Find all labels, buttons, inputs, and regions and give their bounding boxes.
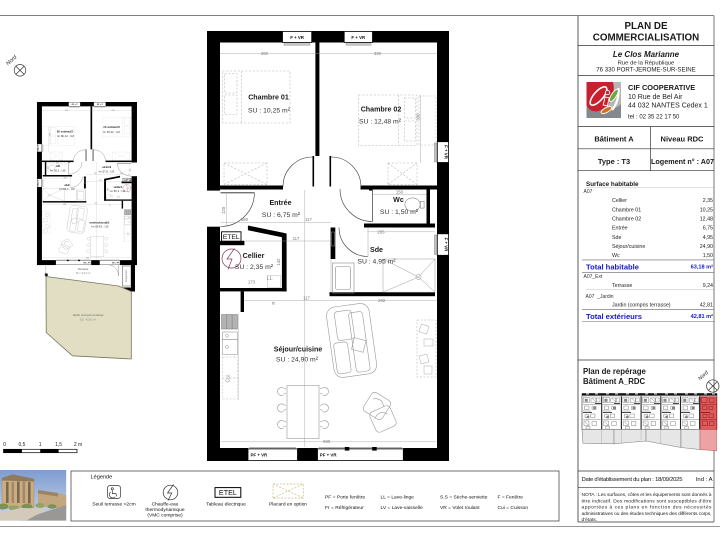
svg-text:1,50: 1,50 — [703, 253, 713, 259]
svg-text:173: 173 — [248, 279, 256, 284]
svg-text:Type : T3: Type : T3 — [598, 157, 630, 166]
svg-text:Bâtiment A_RDC: Bâtiment A_RDC — [583, 377, 645, 386]
svg-text:F + VR: F + VR — [290, 35, 305, 40]
svg-text:Seuil terrasse <2cm: Seuil terrasse <2cm — [92, 502, 135, 508]
svg-text:PLAN DE: PLAN DE — [624, 21, 667, 32]
svg-text:2,35: 2,35 — [703, 198, 713, 204]
svg-text:Wc: Wc — [612, 253, 620, 259]
svg-text:LV = Lave-vaisselle: LV = Lave-vaisselle — [381, 505, 423, 511]
svg-text:590: 590 — [323, 439, 331, 444]
svg-text:12,48: 12,48 — [700, 217, 713, 223]
svg-text:Cellier: Cellier — [243, 252, 265, 260]
svg-text:Niveau RDC: Niveau RDC — [661, 135, 705, 144]
svg-text:1: 1 — [39, 442, 42, 448]
svg-text:Bâtiment A: Bâtiment A — [594, 135, 634, 144]
svg-text:CIF COOPERATIVE: CIF COOPERATIVE — [628, 83, 695, 92]
svg-text:SU : 12,48 m²: SU : 12,48 m² — [359, 119, 402, 126]
svg-text:Entrée: Entrée — [612, 226, 628, 232]
svg-text:76 330 PORT-JEROME-SUR-SEINE: 76 330 PORT-JEROME-SUR-SEINE — [596, 67, 695, 74]
svg-text:PF = Porte fenêtre: PF = Porte fenêtre — [325, 494, 365, 500]
svg-text:180: 180 — [241, 217, 249, 222]
svg-text:Total habitable: Total habitable — [586, 262, 639, 271]
svg-text:Entrée: Entrée — [269, 199, 291, 207]
svg-text:Plan de repérage: Plan de repérage — [583, 367, 646, 376]
svg-text:Terrasse: Terrasse — [612, 283, 632, 289]
svg-text:117: 117 — [293, 236, 300, 241]
svg-text:0,5: 0,5 — [19, 442, 26, 448]
svg-text:SU : 4,95 m²: SU : 4,95 m² — [357, 259, 396, 266]
svg-text:Chauffe-eau: Chauffe-eau — [152, 502, 179, 508]
svg-text:apportées à ces plans en fonct: apportées à ces plans en fonction des né… — [582, 505, 713, 511]
svg-text:Sde: Sde — [612, 235, 621, 241]
svg-text:4,95: 4,95 — [703, 235, 713, 241]
svg-text:292: 292 — [378, 298, 386, 303]
svg-text:Jardin (compris terrasse): Jardin (compris terrasse) — [73, 313, 104, 317]
svg-text:142: 142 — [276, 258, 281, 266]
svg-text:Wc: Wc — [393, 196, 404, 204]
svg-text:Fr = Réfrigérateur: Fr = Réfrigérateur — [325, 505, 364, 511]
svg-text:SU : 9,24 m²: SU : 9,24 m² — [76, 271, 91, 275]
svg-text:Tableau électrique: Tableau électrique — [206, 502, 246, 508]
svg-text:Séjour/cuisine: Séjour/cuisine — [274, 346, 323, 354]
svg-text:6,75: 6,75 — [703, 226, 713, 232]
svg-text:120: 120 — [221, 206, 226, 214]
svg-text:150: 150 — [396, 190, 404, 195]
svg-text:F + VR: F + VR — [444, 145, 449, 160]
svg-text:10,25: 10,25 — [700, 207, 713, 213]
svg-text:A07 _Jardin: A07 _Jardin — [586, 294, 614, 300]
svg-text:Chambre 02: Chambre 02 — [612, 217, 641, 223]
svg-text:Total extérieurs: Total extérieurs — [586, 312, 642, 321]
svg-text:24,90: 24,90 — [700, 244, 713, 250]
svg-text:SU : 42,81 m²: SU : 42,81 m² — [80, 318, 96, 322]
svg-text:SU : 2,35 m²: SU : 2,35 m² — [235, 264, 274, 271]
svg-text:2 m: 2 m — [74, 442, 82, 448]
svg-text:Chambre 01: Chambre 01 — [612, 207, 641, 213]
svg-text:Jardin (compris terrasse): Jardin (compris terrasse) — [612, 303, 671, 309]
svg-text:42,81 m²: 42,81 m² — [691, 313, 714, 320]
svg-text:S.S = Sèche-serviette: S.S = Sèche-serviette — [440, 494, 488, 500]
svg-text:Logement n° : A07: Logement n° : A07 — [651, 157, 714, 166]
svg-text:44 032 NANTES Cedex 1: 44 032 NANTES Cedex 1 — [628, 103, 708, 110]
svg-text:9,24: 9,24 — [703, 283, 713, 289]
svg-text:Terrasse: Terrasse — [78, 267, 89, 271]
svg-text:Cui.: Cui. — [226, 374, 232, 383]
svg-text:F + VR: F + VR — [351, 35, 366, 40]
svg-text:NOTA : Les surfaces, côtes et: NOTA : Les surfaces, côtes et les équipe… — [582, 492, 712, 498]
svg-text:1,5: 1,5 — [55, 442, 62, 448]
svg-text:10 Rue de Bel Air: 10 Rue de Bel Air — [628, 94, 683, 101]
svg-text:SU : 24,90 m²: SU : 24,90 m² — [276, 357, 319, 364]
svg-text:SU : 10,25 m²: SU : 10,25 m² — [248, 108, 291, 115]
svg-text:Légende: Légende — [91, 474, 113, 480]
svg-text:VR = Volet roulant: VR = Volet roulant — [440, 505, 480, 511]
svg-text:ETEL: ETEL — [219, 488, 237, 497]
svg-text:63,18 m²: 63,18 m² — [691, 263, 714, 270]
svg-text:Le Clos Marianne: Le Clos Marianne — [613, 50, 680, 59]
svg-text:COMMERCIALISATION: COMMERCIALISATION — [593, 33, 700, 44]
svg-text:0: 0 — [3, 442, 6, 448]
svg-text:tel : 02 35 22 17 50: tel : 02 35 22 17 50 — [628, 115, 680, 121]
svg-text:titre indicatif. Des modificat: titre indicatif. Des modifications sont … — [582, 498, 712, 504]
svg-text:LL: LL — [267, 276, 273, 282]
svg-text:SU : 1,50 m²: SU : 1,50 m² — [380, 209, 419, 216]
svg-text:Surface habitable: Surface habitable — [586, 181, 639, 188]
svg-text:Chambre 02: Chambre 02 — [361, 106, 402, 114]
svg-text:205: 205 — [377, 229, 385, 234]
svg-text:Cellier: Cellier — [612, 198, 627, 204]
svg-text:A07: A07 — [584, 189, 593, 195]
svg-text:Sde: Sde — [370, 246, 383, 254]
svg-text:ETEL: ETEL — [223, 234, 240, 241]
svg-text:Cui = Cuisson: Cui = Cuisson — [498, 505, 529, 511]
svg-text:SU : 6,75 m²: SU : 6,75 m² — [262, 212, 301, 219]
svg-text:thermodynamique: thermodynamique — [145, 507, 184, 513]
svg-text:PF + VR: PF + VR — [320, 452, 338, 457]
svg-text:F + VR: F + VR — [444, 238, 449, 253]
svg-text:320: 320 — [374, 51, 382, 56]
svg-text:Ind : A: Ind : A — [696, 477, 713, 483]
svg-text:A07_Ext: A07_Ext — [584, 274, 604, 280]
svg-text:LL = Lave-linge: LL = Lave-linge — [381, 494, 415, 500]
svg-text:117: 117 — [303, 296, 310, 301]
svg-text:Date d'établissement du plan :: Date d'établissement du plan : 18/09/202… — [582, 477, 684, 483]
svg-text:117: 117 — [305, 217, 312, 222]
svg-text:Placard en option: Placard en option — [269, 502, 307, 508]
svg-text:(VMC comprise): (VMC comprise) — [147, 513, 183, 519]
svg-text:260: 260 — [261, 51, 269, 56]
svg-text:330: 330 — [416, 113, 421, 121]
svg-text:Chambre 01: Chambre 01 — [248, 94, 289, 102]
svg-text:Séjour/cuisine: Séjour/cuisine — [612, 244, 645, 250]
svg-text:F = Fenêtre: F = Fenêtre — [498, 494, 524, 500]
svg-text:R: R — [271, 301, 276, 304]
svg-text:administratives ou des études: administratives ou des études techniques… — [582, 511, 712, 517]
svg-text:PF + VR: PF + VR — [251, 452, 269, 457]
svg-text:Rangement: Rangement — [125, 269, 128, 282]
svg-text:42,81: 42,81 — [700, 303, 713, 309]
